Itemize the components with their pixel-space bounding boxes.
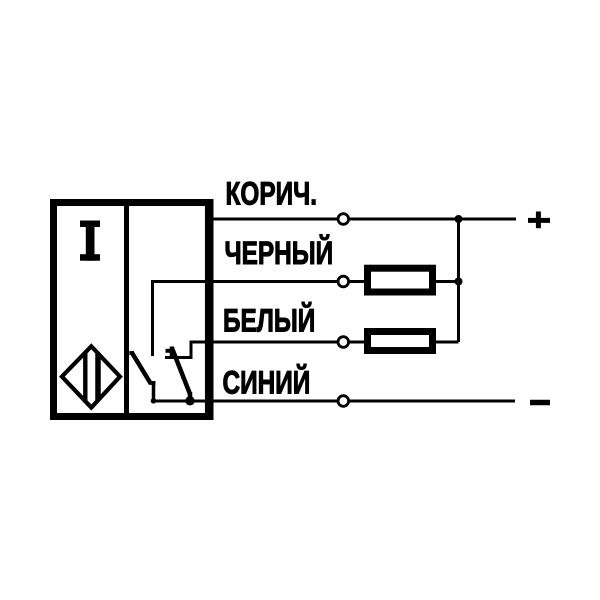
svg-text:БЕЛЫЙ: БЕЛЫЙ <box>223 302 315 339</box>
svg-text:ЧЕРНЫЙ: ЧЕРНЫЙ <box>225 234 334 271</box>
svg-text:СИНИЙ: СИНИЙ <box>223 364 311 401</box>
svg-text:КОРИЧ.: КОРИЧ. <box>226 176 318 212</box>
